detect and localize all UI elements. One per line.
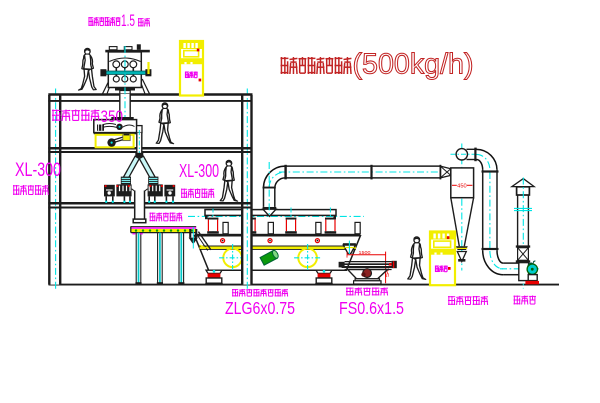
svg-text:1.5: 1.5 [121,12,135,30]
svg-text:XL-300: XL-300 [179,160,219,181]
svg-text:1500: 1500 [359,250,371,255]
svg-text:ZLG6x0.75: ZLG6x0.75 [225,298,295,318]
svg-text:FS0.6x1.5: FS0.6x1.5 [339,298,404,318]
svg-text:XL-300: XL-300 [15,159,61,181]
svg-text:450: 450 [457,183,467,189]
svg-text:350: 350 [101,107,124,126]
svg-text:(500kg/h): (500kg/h) [353,49,474,81]
